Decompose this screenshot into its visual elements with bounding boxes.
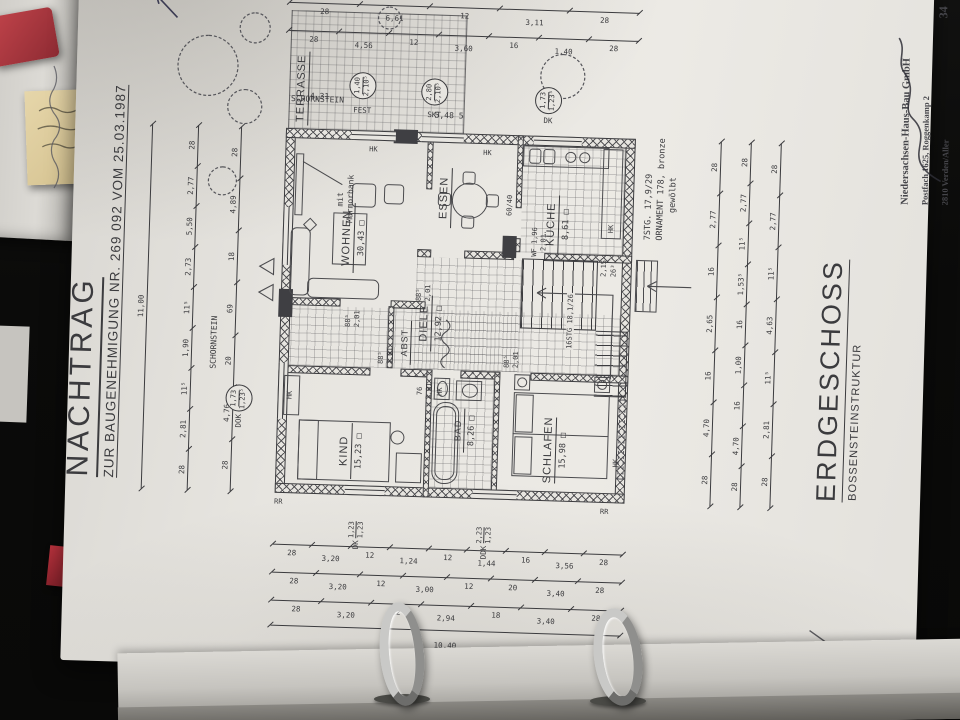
annotation: SCHORNSTEIN [208,316,219,369]
annotation: HK [612,459,620,468]
annotation: RR [274,497,283,505]
window-size-circle: 1,731,23⁵ [535,87,563,115]
annotation: HK [607,225,615,234]
window-label-ddk: DDK2,231,23 [475,527,493,560]
signature-squiggle [895,38,945,181]
annotation: 4,31 [310,91,330,101]
entrance-arrow-icon [647,281,691,292]
annotation: 2,01 [539,234,548,251]
annotation: 60/40 [505,195,514,216]
plan-sheet: NACHTRAG ZUR BAUGENEHMIGUNG NR. 269 092 … [40,0,960,674]
leader-line [302,161,343,184]
annotation: HK [369,145,378,153]
bush-icon [208,166,237,195]
window-type: DK [351,540,360,549]
annotation: Marmorbank [345,175,356,223]
annotation: 2,01 [386,347,395,364]
annotation: 88⁵ [503,355,511,368]
pen-arrow-mark [156,0,179,17]
window-label-dk: DK1,731,23⁵ [534,87,562,126]
window-label-dok: DOK1,731,23⁵ [225,385,253,428]
window-type: DK [543,116,552,125]
annotation: 88⁵ [344,314,352,327]
wardrobe-squiggle [441,320,451,368]
photo-scene: NACHTRAG ZUR BAUGENEHMIGUNG NR. 269 092 … [0,0,960,720]
window-size: 2,231,23 [475,527,493,544]
annotation: 76 [416,387,424,396]
annotation: 2,01 [512,351,521,368]
window-size-circle: 1,402,10⁵ [349,72,377,100]
window-label-skt: SKT2,802,10⁵ [420,79,448,122]
window-type: DOK [234,414,243,428]
annotation: 88⁵ [377,351,385,364]
annotation: 2,01 [424,284,433,301]
annotation: HK [483,149,492,157]
window-label-dk: DK1,231,23 [347,521,365,549]
bush-icon [240,12,271,43]
window-type: FEST [353,105,371,115]
sketch-overlay [40,0,960,674]
annotation: RR [600,508,609,516]
annotation: HK [436,387,444,396]
annotation: HK [286,391,294,400]
annotation: mit [336,192,345,207]
annotation: 2,01 [353,310,362,327]
window-size: 1,231,23 [347,521,365,538]
bush-icon [227,89,262,124]
annotation: 26³ [610,264,618,277]
annotation: 2,15 [600,260,609,277]
bush-icon [378,7,401,30]
window-type: SKT [427,110,441,119]
bush-icon [177,34,239,96]
paper-scrap [0,325,30,422]
annotation: 7STG. 17,9/29 [643,174,655,241]
annotation: WF 1,96 [530,227,539,257]
annotation: gewölbt [668,177,679,213]
annotation: 88⁵ [415,288,423,301]
window-type: DDK [479,546,488,560]
window-size-circle: 2,802,10⁵ [421,79,449,107]
door-swing-triangles [259,258,274,300]
window-label-fest: FEST1,402,10⁵ [348,72,376,120]
annotation: 2,01 [425,383,434,400]
window-size-circle: 1,731,23⁵ [225,385,253,413]
